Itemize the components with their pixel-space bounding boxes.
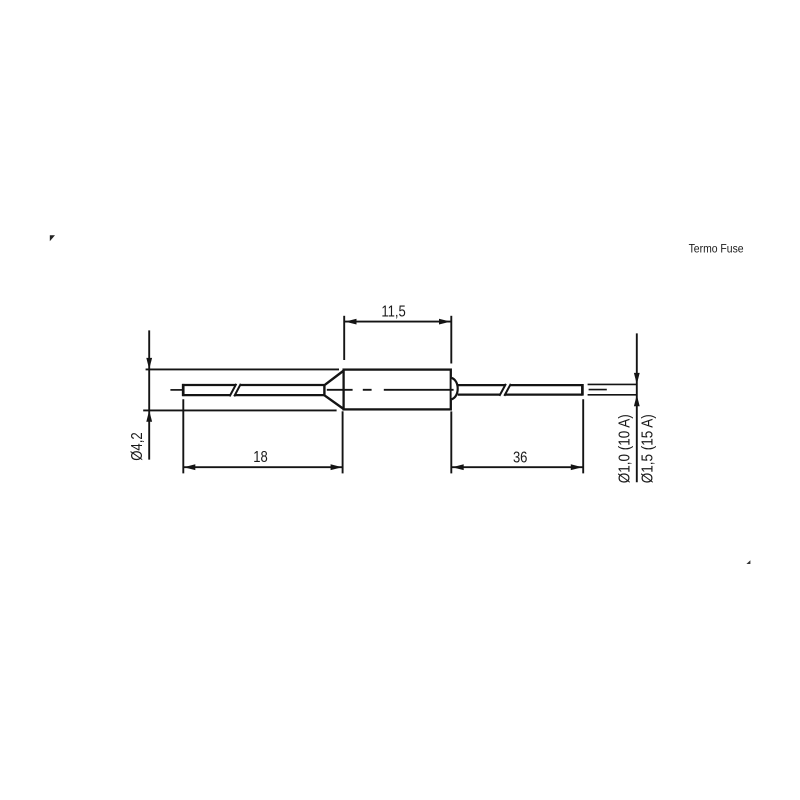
svg-text:18: 18 — [253, 449, 268, 466]
svg-text:Ø4,2: Ø4,2 — [129, 432, 146, 461]
svg-text:36: 36 — [513, 450, 528, 467]
svg-text:11,5: 11,5 — [381, 303, 406, 320]
svg-text:Termo Fuse: Termo Fuse — [689, 242, 744, 256]
svg-text:Ø1,5 (15 A): Ø1,5 (15 A) — [639, 414, 656, 483]
svg-text:Ø1,0 (10 A): Ø1,0 (10 A) — [616, 414, 633, 483]
